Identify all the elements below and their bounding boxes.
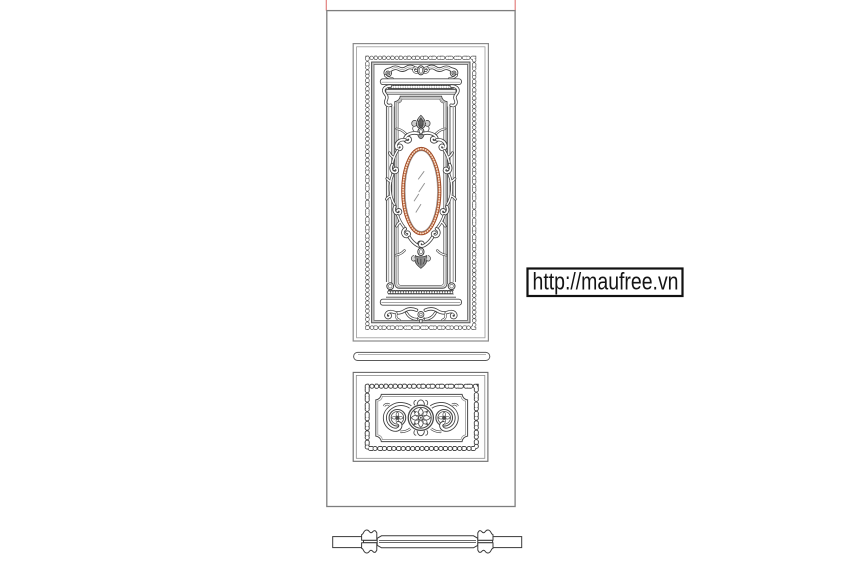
svg-text:http://maufree.vn: http://maufree.vn — [533, 269, 679, 296]
